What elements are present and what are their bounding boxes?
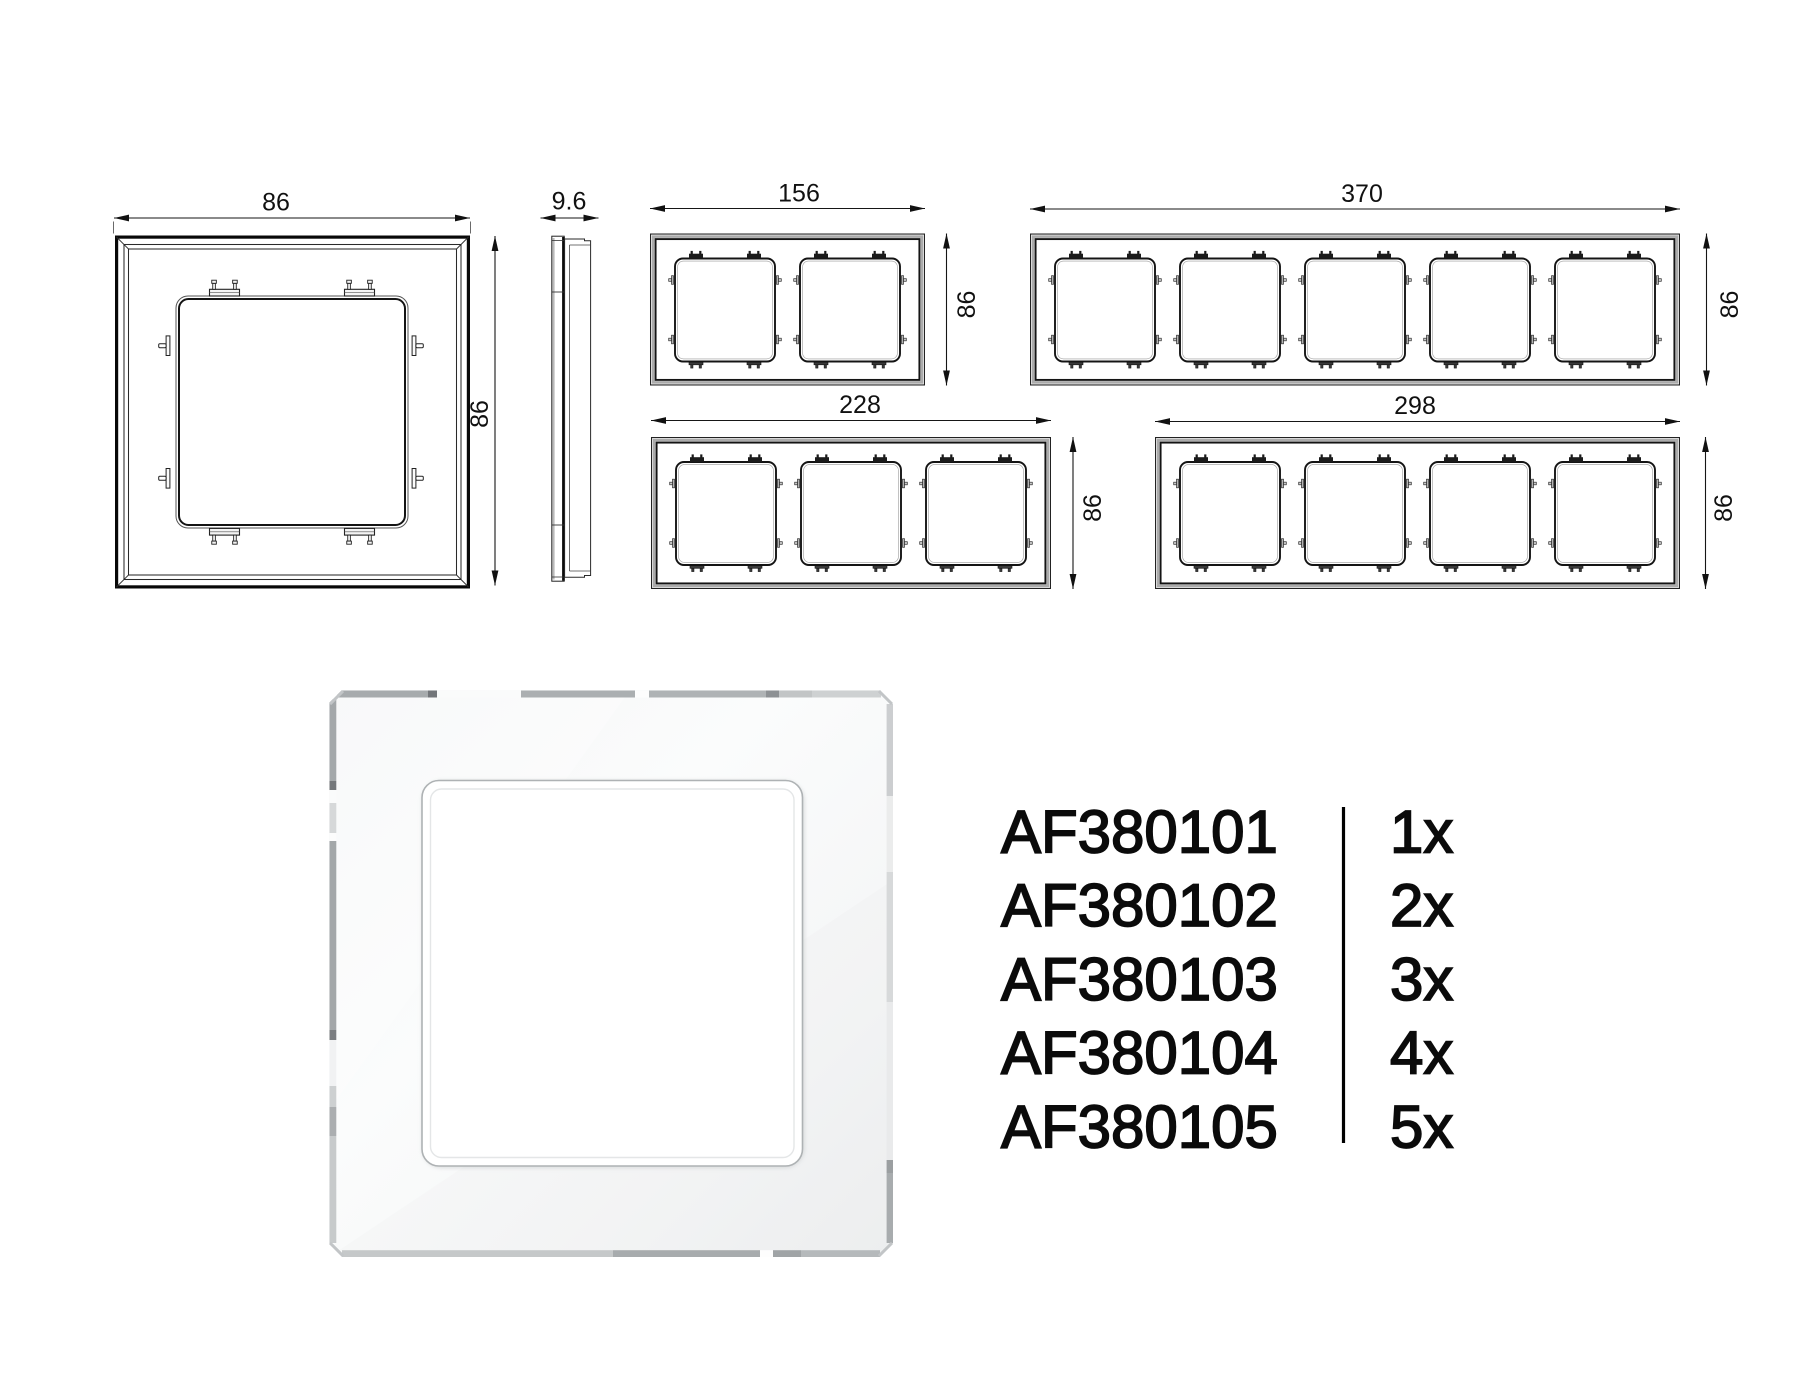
svg-text:298: 298	[1394, 392, 1436, 420]
svg-text:86: 86	[466, 400, 494, 428]
svg-text:86: 86	[1079, 494, 1107, 522]
svg-text:370: 370	[1341, 180, 1383, 208]
svg-text:1x: 1x	[1390, 799, 1453, 866]
svg-text:AF380104: AF380104	[1001, 1020, 1278, 1087]
svg-text:AF380102: AF380102	[1001, 872, 1278, 939]
svg-text:3x: 3x	[1390, 946, 1453, 1013]
svg-text:2x: 2x	[1390, 872, 1453, 939]
svg-text:86: 86	[262, 189, 290, 217]
svg-text:AF380103: AF380103	[1001, 946, 1278, 1013]
svg-text:4x: 4x	[1390, 1020, 1453, 1087]
svg-text:86: 86	[953, 291, 981, 319]
svg-text:86: 86	[1710, 494, 1738, 522]
svg-text:AF380105: AF380105	[1001, 1093, 1278, 1160]
svg-text:9.6: 9.6	[552, 188, 587, 216]
svg-text:228: 228	[839, 391, 881, 419]
svg-text:5x: 5x	[1390, 1093, 1453, 1160]
svg-text:86: 86	[1716, 291, 1744, 319]
svg-text:156: 156	[778, 180, 820, 208]
svg-text:AF380101: AF380101	[1001, 799, 1278, 866]
